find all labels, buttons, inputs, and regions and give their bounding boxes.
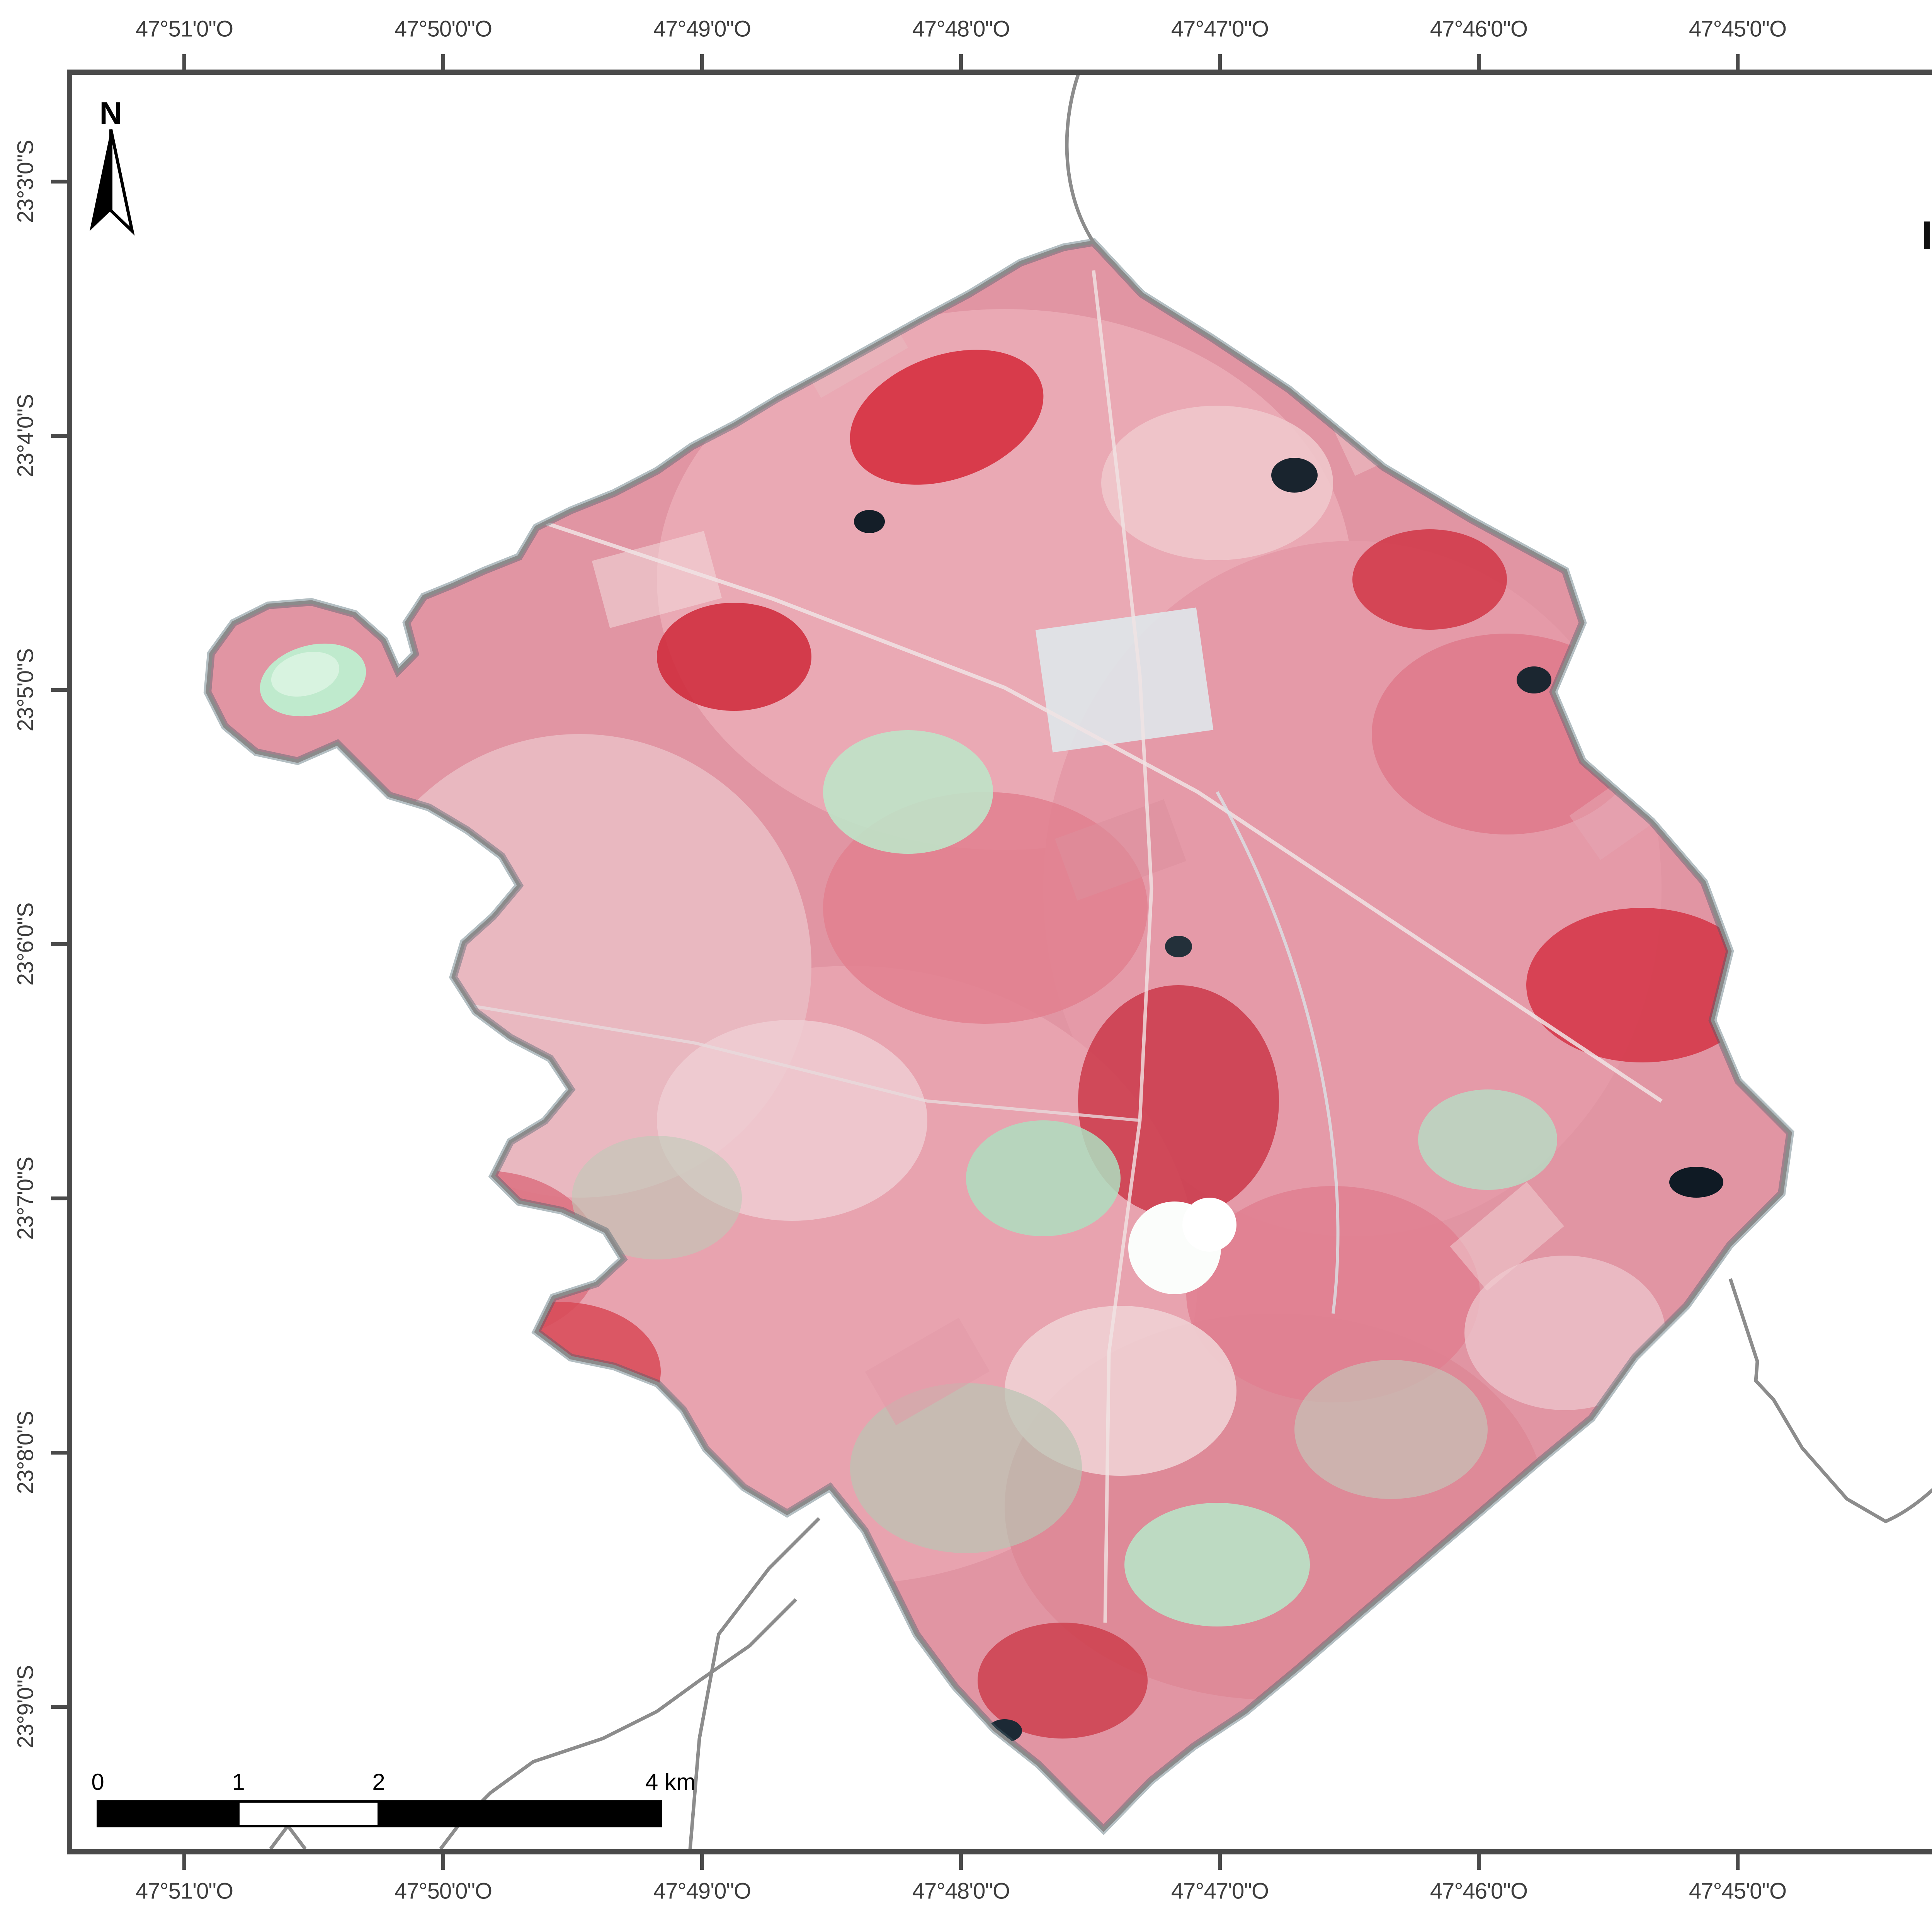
scalebar-label: 0: [91, 1769, 104, 1795]
project-title-line2: IMPLANTAÇÃO DO CAR: [1921, 209, 1932, 263]
lon-label-top: 47°47'0"O: [1171, 16, 1269, 42]
lon-label-top: 47°48'0"O: [912, 16, 1010, 42]
lon-label-top: 47°50'0"O: [395, 16, 492, 42]
lon-label-top: 47°51'0"O: [136, 16, 233, 42]
lat-label: 23°7'0"S: [13, 1157, 39, 1240]
lon-label-bottom: 47°46'0"O: [1430, 1878, 1527, 1904]
lat-label: 23°9'0"S: [13, 1665, 39, 1749]
north-label: N: [99, 95, 122, 132]
scalebar-label: 2: [372, 1769, 385, 1795]
lon-label-top: 47°46'0"O: [1430, 16, 1527, 42]
lon-label-bottom: 47°47'0"O: [1171, 1878, 1269, 1904]
lon-label-top: 47°49'0"O: [653, 16, 751, 42]
lat-label: 23°8'0"S: [13, 1411, 39, 1494]
scalebar-label: 1: [232, 1769, 245, 1795]
map-frame-content: [155, 75, 1932, 1893]
lat-label: 23°4'0"S: [13, 394, 39, 478]
lon-label-bottom: 47°51'0"O: [136, 1878, 233, 1904]
lat-label: 23°5'0"S: [13, 649, 39, 732]
satellite-imagery: [155, 193, 1855, 1893]
lat-label: 23°6'0"S: [13, 903, 39, 986]
lon-label-bottom: 47°45'0"O: [1689, 1878, 1786, 1904]
map-canvas: [0, 0, 1932, 1917]
lon-label-bottom: 47°48'0"O: [912, 1878, 1010, 1904]
scale-bar: [98, 1801, 661, 1826]
lon-label-bottom: 47°50'0"O: [395, 1878, 492, 1904]
lon-label-top: 47°45'0"O: [1689, 16, 1786, 42]
lat-label: 23°3'0"S: [13, 140, 39, 223]
lon-label-bottom: 47°49'0"O: [653, 1878, 751, 1904]
north-arrow-icon: [90, 129, 132, 231]
scalebar-label: 4 km: [645, 1769, 696, 1795]
